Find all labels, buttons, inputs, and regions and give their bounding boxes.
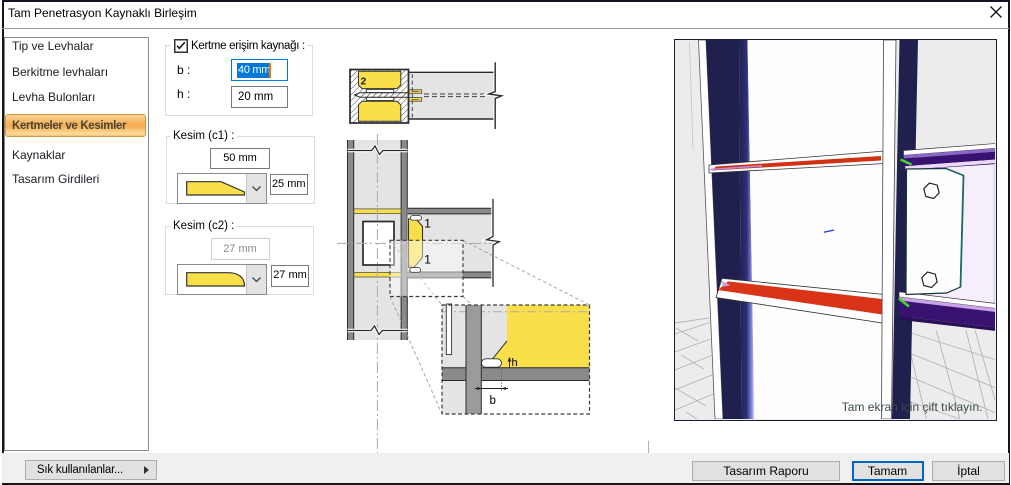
svg-text:2: 2 [361, 76, 367, 88]
svg-text:1: 1 [424, 217, 431, 231]
svg-text:b: b [490, 395, 496, 407]
svg-text:1: 1 [424, 253, 431, 267]
svg-text:h: h [512, 357, 518, 369]
